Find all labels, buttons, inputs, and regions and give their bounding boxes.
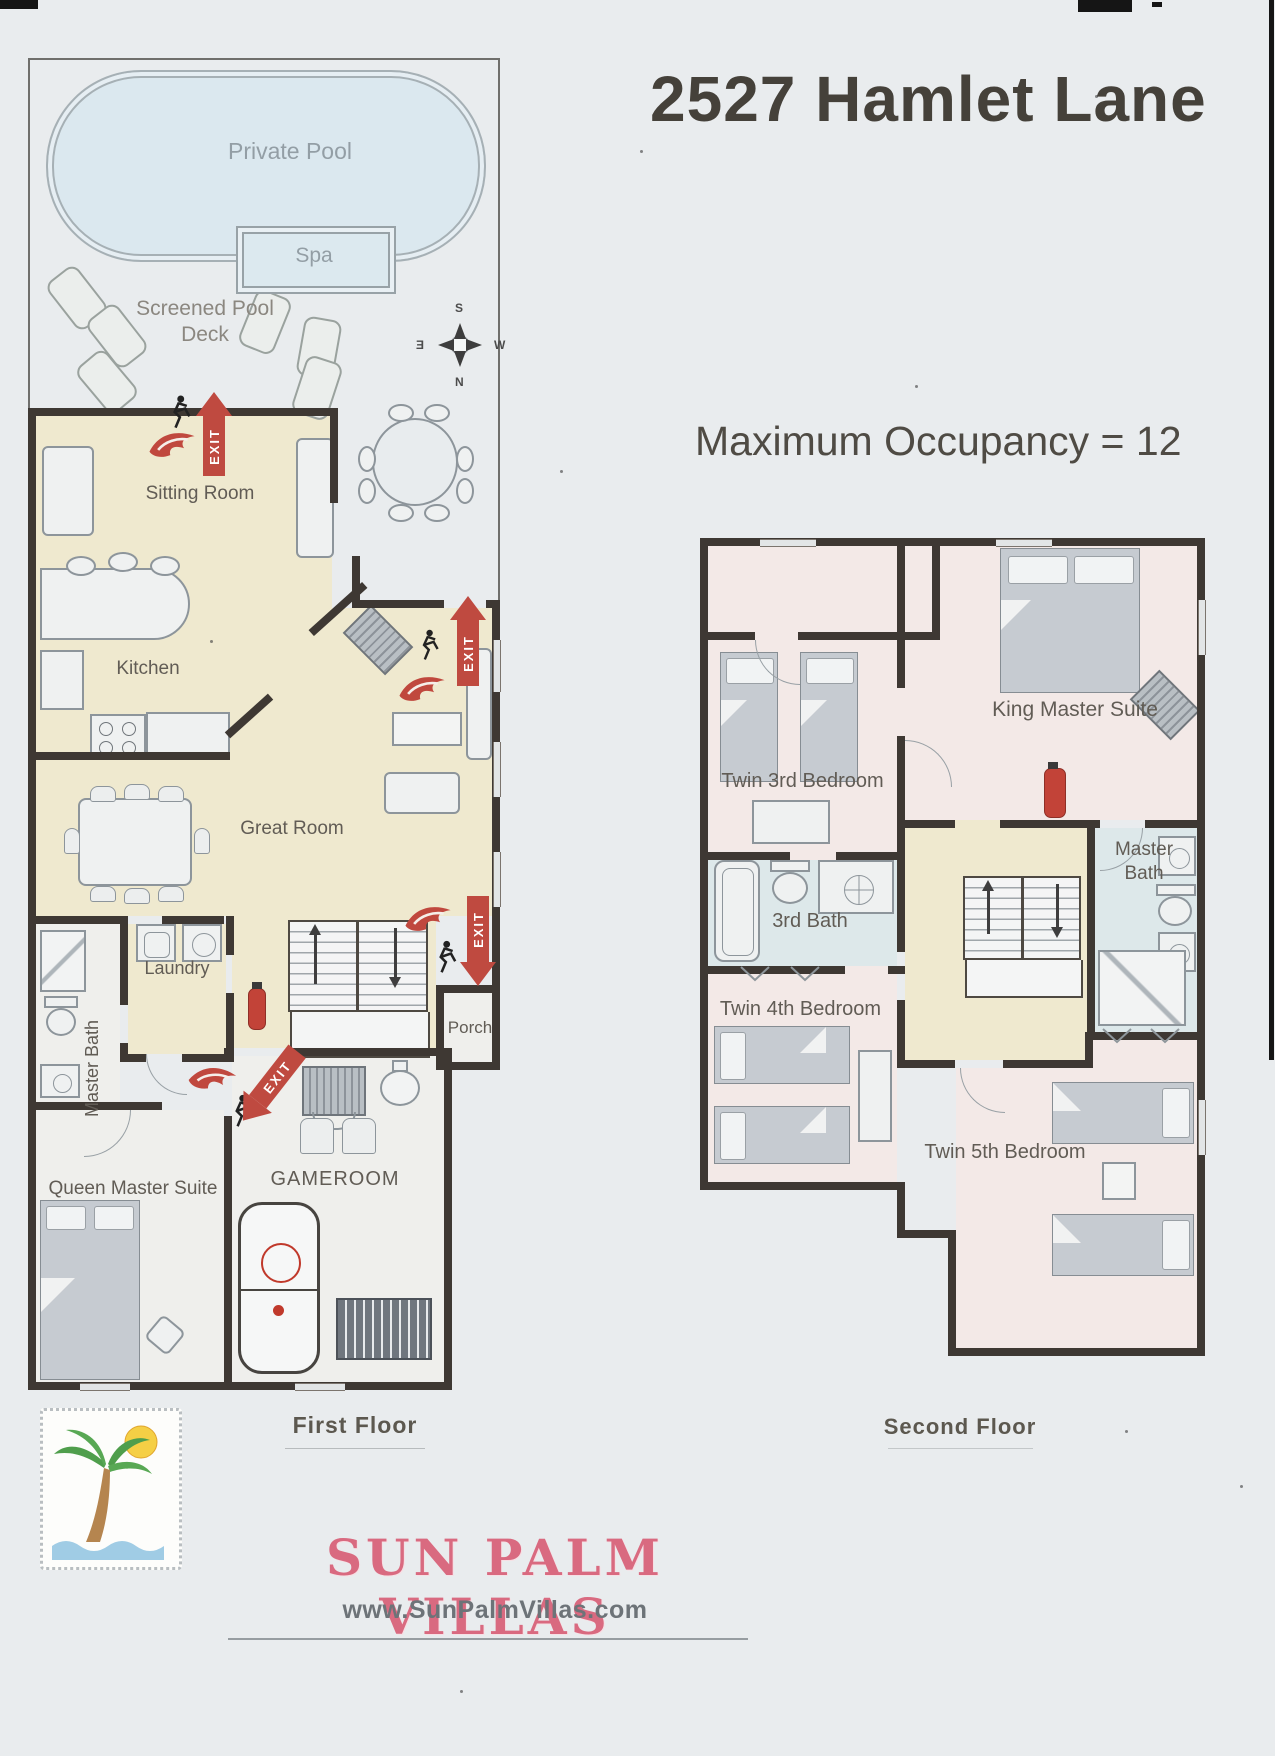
compass-w: W	[494, 338, 505, 352]
wall	[436, 985, 500, 993]
label-screened-pool-deck: Screened Pool Deck	[110, 296, 300, 349]
label-sitting-room: Sitting Room	[120, 483, 280, 505]
scan-mark	[1152, 2, 1162, 7]
pillow	[46, 1206, 86, 1230]
compass-s: S	[455, 301, 463, 315]
label-private-pool: Private Pool	[200, 138, 380, 165]
label-gameroom: GAMEROOM	[250, 1168, 420, 1191]
website-url: www.SunPalmVillas.com	[230, 1596, 760, 1625]
kitchen-island	[40, 568, 190, 640]
bed-fold	[800, 1027, 826, 1053]
exit-arrow-up	[450, 596, 486, 620]
closet-door	[740, 966, 770, 987]
wall	[224, 1116, 232, 1390]
dining-chair	[456, 446, 474, 472]
chair	[158, 786, 184, 802]
underline	[285, 1448, 425, 1449]
toilet	[46, 1008, 76, 1036]
flame-icon	[402, 898, 454, 941]
bed-fold	[1001, 600, 1031, 630]
wall	[708, 632, 755, 640]
window	[493, 640, 501, 692]
label-second-floor: Second Floor	[870, 1414, 1050, 1440]
wall	[1145, 820, 1205, 828]
wall	[120, 1054, 146, 1062]
shower	[40, 930, 86, 992]
chair	[124, 784, 150, 800]
pillow	[720, 1112, 746, 1160]
window	[996, 539, 1052, 547]
sofa	[296, 438, 334, 558]
round-table-back	[392, 1060, 408, 1072]
label-first-floor: First Floor	[270, 1412, 440, 1439]
wall	[897, 546, 905, 688]
closet-door	[790, 966, 820, 987]
deck-edge	[498, 58, 500, 610]
bed-fold	[1053, 1215, 1081, 1243]
dresser	[858, 1050, 892, 1142]
wall	[932, 546, 940, 640]
scan-mark	[0, 0, 38, 9]
dining-chair	[388, 504, 414, 522]
dining-chair	[456, 478, 474, 504]
wall	[888, 966, 905, 974]
wall	[708, 852, 790, 860]
exit-sign: EXIT	[196, 392, 232, 476]
wall	[897, 820, 955, 828]
window	[80, 1383, 130, 1391]
sofa	[42, 446, 94, 536]
washer	[136, 924, 176, 962]
window	[493, 742, 501, 797]
refrigerator	[40, 650, 84, 710]
fire-extinguisher-icon	[1044, 768, 1066, 818]
stair-rail	[1021, 876, 1024, 960]
wall	[948, 1230, 956, 1356]
stool	[66, 556, 96, 576]
exit-sign: EXIT	[460, 896, 496, 986]
label-master-bath-2f: Master Bath	[1098, 838, 1190, 886]
wall	[700, 1182, 905, 1190]
stair-rail	[356, 920, 359, 1012]
window	[760, 539, 816, 547]
occupancy-note: Maximum Occupancy = 12	[695, 418, 1182, 465]
nightstand	[1102, 1162, 1136, 1200]
pillow	[1162, 1220, 1190, 1270]
tv	[302, 1066, 366, 1116]
bed-fold	[721, 700, 747, 726]
pillow	[806, 658, 854, 684]
window	[1198, 600, 1206, 655]
wall	[897, 828, 905, 952]
dining-chair	[358, 446, 376, 472]
wall	[897, 1060, 955, 1068]
label-3rd-bath: 3rd Bath	[740, 910, 880, 933]
window	[295, 1383, 345, 1391]
wall	[330, 408, 338, 503]
label-twin-5th-bedroom: Twin 5th Bedroom	[910, 1141, 1100, 1164]
stairs-down-arrow	[1056, 884, 1059, 928]
closet-door	[1150, 1028, 1180, 1049]
label-great-room: Great Room	[212, 818, 372, 840]
kitchen-counter	[146, 712, 230, 756]
piano-keyboard	[336, 1298, 432, 1360]
wall	[1085, 1032, 1093, 1068]
coffee-table	[392, 712, 462, 746]
wall	[226, 916, 234, 955]
wall	[798, 632, 940, 640]
wall	[1003, 1060, 1093, 1068]
toilet	[772, 872, 808, 904]
runner-icon	[166, 394, 192, 435]
stair-landing	[965, 960, 1083, 998]
label-porch: Porch	[434, 1018, 506, 1038]
flame-icon	[396, 668, 448, 711]
label-queen-master-suite: Queen Master Suite	[38, 1178, 228, 1200]
label-twin-3rd-bedroom: Twin 3rd Bedroom	[705, 770, 900, 793]
table	[78, 798, 192, 886]
sofa	[384, 772, 460, 814]
underline	[888, 1448, 1033, 1449]
compass-icon: S N E W	[428, 313, 492, 377]
wall	[444, 1048, 452, 1390]
door-swing	[146, 1054, 187, 1095]
stairs-up-arrow	[314, 934, 317, 984]
chair	[342, 1118, 376, 1154]
pillow	[94, 1206, 134, 1230]
brand-logo-text: SUN PALM VILLAS	[230, 1528, 760, 1646]
dining-chair	[424, 404, 450, 422]
toilet	[1158, 896, 1192, 926]
pillow	[1074, 556, 1134, 584]
wall	[28, 408, 36, 1390]
stairs-up-arrow	[987, 890, 990, 934]
pillow	[1162, 1088, 1190, 1138]
deck-edge	[28, 58, 30, 412]
label-kitchen: Kitchen	[88, 658, 208, 680]
wall	[436, 1062, 500, 1070]
fire-extinguisher-icon	[248, 988, 266, 1030]
compass-n: N	[455, 375, 464, 389]
wall	[1000, 820, 1100, 828]
bed-fold	[1053, 1083, 1081, 1111]
pillow	[1008, 556, 1068, 584]
toilet-tank	[770, 860, 810, 872]
air-hockey-table	[238, 1202, 320, 1374]
wall	[286, 1048, 452, 1056]
page-title: 2527 Hamlet Lane	[650, 62, 1207, 136]
label-master-bath-1f: Master Bath	[82, 952, 103, 1117]
label-king-master-suite: King Master Suite	[960, 698, 1190, 722]
bed-fold	[800, 1107, 826, 1133]
floor-plan-page: 2527 Hamlet Lane Maximum Occupancy = 12 …	[0, 0, 1275, 1756]
dining-chair	[358, 478, 376, 504]
wall	[162, 916, 224, 924]
wall	[28, 752, 230, 760]
dining-chair	[424, 504, 450, 522]
chair	[124, 888, 150, 904]
compass-e: E	[416, 338, 424, 352]
chair	[194, 828, 210, 854]
wall	[836, 852, 905, 860]
runner-icon	[432, 940, 458, 979]
wall	[700, 538, 708, 1190]
chair	[158, 886, 184, 902]
chair	[90, 886, 116, 902]
chair	[90, 786, 116, 802]
bed-fold	[41, 1278, 75, 1312]
stool	[108, 552, 138, 572]
wall	[948, 1348, 1205, 1356]
toilet-tank	[1156, 884, 1196, 896]
stairs-down-arrow	[394, 928, 397, 978]
exit-sign: EXIT	[450, 596, 486, 686]
chair	[64, 828, 80, 854]
wall	[1087, 820, 1095, 1032]
shower	[1098, 950, 1186, 1026]
wall	[708, 966, 845, 974]
scan-mark	[1078, 0, 1132, 12]
sun-palm-villas-stamp	[40, 1408, 182, 1570]
wall	[352, 600, 444, 608]
dresser	[752, 800, 830, 844]
dryer	[182, 924, 222, 962]
toilet-tank	[44, 996, 78, 1008]
scan-edge	[1269, 0, 1274, 1060]
pillow	[720, 1032, 746, 1080]
label-spa: Spa	[264, 244, 364, 268]
label-laundry: Laundry	[122, 958, 232, 979]
runner-icon	[416, 628, 440, 667]
wall	[28, 916, 124, 924]
closet-door	[1102, 1028, 1132, 1049]
wall	[897, 1000, 905, 1068]
dining-chair	[388, 404, 414, 422]
label-twin-4th-bedroom: Twin 4th Bedroom	[708, 998, 893, 1021]
round-table	[380, 1070, 420, 1106]
deck-edge	[28, 58, 500, 60]
bed-fold	[801, 700, 827, 726]
exit-arrow-down	[460, 962, 496, 986]
sink	[40, 1064, 80, 1098]
exit-arrow-up	[196, 392, 232, 416]
window	[1198, 1100, 1206, 1155]
dining-table	[372, 418, 458, 506]
stool	[150, 556, 180, 576]
wall	[1197, 538, 1205, 1356]
chair	[300, 1118, 334, 1154]
vanity	[818, 860, 894, 914]
